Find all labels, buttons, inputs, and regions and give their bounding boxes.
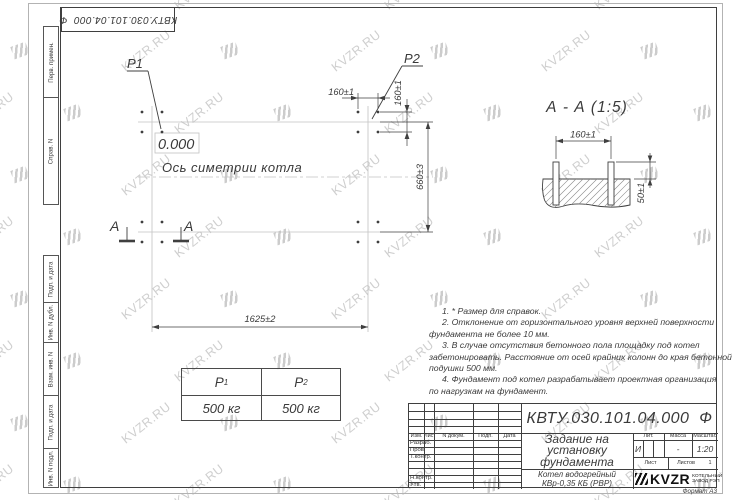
load-table-header-p2: P2 [261,369,340,395]
note-line: 3. В случае отсутствия бетонного пола пл… [429,340,717,351]
col-ndokum: N докум. [434,433,473,440]
sheets-label: Листов [668,457,704,469]
load-table: P1 P2 500 кг 500 кг [181,368,341,421]
load-table-value-p1: 500 кг [182,395,261,420]
sig-razrab: Разраб. [410,440,442,447]
section-letter-right: A [183,218,193,234]
load-table-value-p2: 500 кг [261,395,340,420]
col-podp: Подп. [473,433,498,440]
col-list: Лист [424,433,434,440]
section-letter-left: A [109,218,119,234]
note-line: по нагрузкам на фундамент. [429,386,717,397]
company-name: КОТЕЛЬНЫЙ ЗАВОД РЭП [692,474,722,485]
load-point-p1-label: P1 [127,56,143,71]
dim-arrow [361,325,368,330]
p1-symbol: P [215,375,224,390]
anchor-bolt-right [608,162,614,205]
dim-arrow [152,325,159,330]
dim-width-label: 660±3 [415,163,425,190]
product-line: Котел водогрейный [538,470,616,479]
dim-section-bolt-height-label: 50±1 [636,183,646,204]
mass-value: - [664,440,692,457]
section-title: А - А (1:5) [545,99,628,116]
dim-arrow [405,105,410,112]
col-izm: Изм. [409,433,424,440]
note-line: фундамента не более 10 мм. [429,329,717,340]
note-line: 2. Отклонение от горизонтального уровня … [429,317,717,328]
scale-value: 1:20 [692,440,718,457]
dim-arrow [378,96,385,100]
dim-bolt-pitch-x-label: 160±1 [328,87,354,97]
lit-value: И [633,440,643,457]
note-line: подушки 500 мм. [429,363,717,374]
col-data: Дата [498,433,521,440]
load-point-leaders [127,66,423,129]
document-designation: КВТУ.030.101.04.000 Ф [521,404,718,433]
p2-subscript: 2 [303,378,307,387]
sheet-label: Лист [633,457,668,469]
dim-bolt-pitch-y-label: 160±1 [393,80,403,106]
sig-nkontr: Н.контр. [410,475,442,482]
level-mark-label: 0.000 [158,137,194,153]
scale-label: Масштаб [692,433,718,440]
format-label: Формат А3 [600,488,717,495]
product-line: КВр-0,35 КБ (РВР) [542,479,612,488]
kvzr-coil-icon [635,473,648,485]
note-line: 1. * Размер для справок. [429,306,717,317]
axis-of-symmetry-label: Ось симетрии котла [162,160,302,175]
lit-label: Лит. [633,433,664,440]
dim-section-bolt-pitch-label: 160±1 [570,130,596,140]
technical-notes: 1. * Размер для справок. 2. Отклонение о… [429,306,717,397]
p2-symbol: P [294,375,303,390]
dim-length-label: 1625±2 [245,314,277,324]
dim-arrow [648,179,653,186]
dim-arrow [426,122,431,129]
p1-subscript: 1 [224,378,228,387]
foundation-plan: P1 P2 0.000 Ось симетрии котла 160±1 16 [109,51,433,332]
dim-arrow [648,156,653,163]
sig-prov: Пров. [410,447,442,454]
note-line: забетонировать. Расстояние от осей крайн… [429,352,717,363]
kvzr-logo-text: KVZR [650,471,690,487]
company-logo-block: KVZR КОТЕЛЬНЫЙ ЗАВОД РЭП [633,469,718,489]
document-title: Задание на установку фундамента [521,433,633,469]
note-line: 4. Фундамент под котел разрабатывает про… [429,374,717,385]
sheets-count: 1 [704,457,716,469]
section-view: А - А (1:5) [522,99,656,212]
dim-arrow [426,225,431,232]
anchor-bolt-left [553,162,559,205]
title-block: Изм. Лист N докум. Подп. Дата Разраб. Пр… [408,403,717,488]
drawing-sheet: KVZR.RUKVZR.RUKVZR.RUKVZR.RUKVZR.RUKVZR.… [0,0,750,500]
section-cut-marks [119,227,189,241]
company-line: ЗАВОД РЭП [692,479,722,484]
load-point-p2-label: P2 [404,51,421,66]
dim-arrow [604,139,611,143]
product-name: Котел водогрейный КВр-0,35 КБ (РВР) [521,469,633,489]
sig-utv: Утв. [410,482,442,489]
doc-title-line: фундамента [540,457,614,469]
mass-label: Масса [664,433,692,440]
load-table-header-p1: P1 [182,369,261,395]
sig-tkontr: Т.контр. [410,454,442,461]
dim-arrow [405,132,410,139]
dim-arrow [556,139,563,143]
